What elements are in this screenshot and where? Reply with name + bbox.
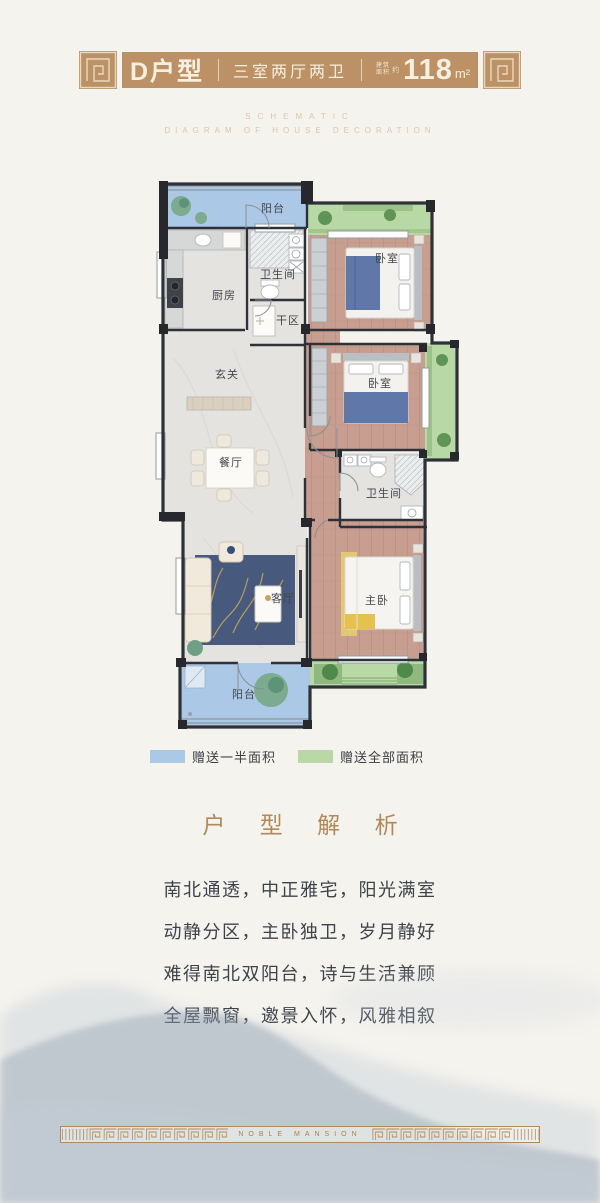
room-label-dining-room: 餐厅 [219,454,243,470]
floor-plan-drawing [143,178,460,731]
room-label-bathroom-2: 卫生间 [366,485,402,501]
analysis-line-1: 南北通透，中正雅宅，阳光满室 [0,869,600,911]
area-approx-label: 约 [392,65,399,75]
room-label-kitchen: 厨房 [212,287,236,303]
poster-canvas: D户型 三室两厅两卫 建筑 面积 约 118 m² SCHEMATIC DIAG… [0,0,600,1203]
subtitle-line1: SCHEMATIC [0,112,600,121]
legend: 赠送一半面积 赠送全部面积 [150,747,424,766]
room-label-bedroom-2: 卧室 [368,375,392,391]
footer-fret-pattern-left [61,1128,228,1141]
legend-swatch-blue [150,750,185,763]
area-unit: m² [455,60,470,81]
footer-ornament-band: NOBLE MANSION [60,1126,540,1143]
header-fret-ornament-right [482,50,522,90]
legend-swatch-green [298,750,333,763]
subtitle-line2: DIAGRAM OF HOUSE DECORATION [0,126,600,135]
room-label-bedroom-1: 卧室 [375,250,399,266]
header-fret-ornament-left [78,50,118,90]
legend-item-full-area: 赠送全部面积 [298,747,424,766]
footer-brand-text: NOBLE MANSION [228,1131,371,1138]
area-note: 建筑 面积 [376,63,390,77]
footer-fret-pattern-right [372,1128,539,1141]
room-layout-label: 三室两厅两卫 [233,58,347,82]
analysis-title: 户 型 解 析 [0,806,600,840]
header-band: D户型 三室两厅两卫 建筑 面积 约 118 m² [122,52,478,88]
room-label-balcony-bottom: 阳台 [232,686,256,702]
room-label-dry-area: 干区 [276,312,300,328]
area-value: 118 [403,54,453,87]
legend-label-full-area: 赠送全部面积 [340,747,424,766]
room-label-bathroom-1: 卫生间 [260,266,296,282]
header-divider [218,59,219,81]
room-label-foyer: 玄关 [215,366,239,382]
mountain-watercolor-art [0,940,600,1203]
header-divider [361,59,362,81]
unit-type-label: D户型 [130,52,204,88]
legend-label-half-area: 赠送一半面积 [192,747,276,766]
legend-item-half-area: 赠送一半面积 [150,747,276,766]
room-label-balcony-top: 阳台 [261,200,285,216]
room-label-living-room: 客厅 [271,590,295,606]
room-label-master-bedroom: 主卧 [365,592,389,608]
floor-plan: 阳台 卫生间 厨房 干区 卧室 玄关 餐厅 卧室 卫生间 客厅 主卧 阳台 [143,178,460,731]
